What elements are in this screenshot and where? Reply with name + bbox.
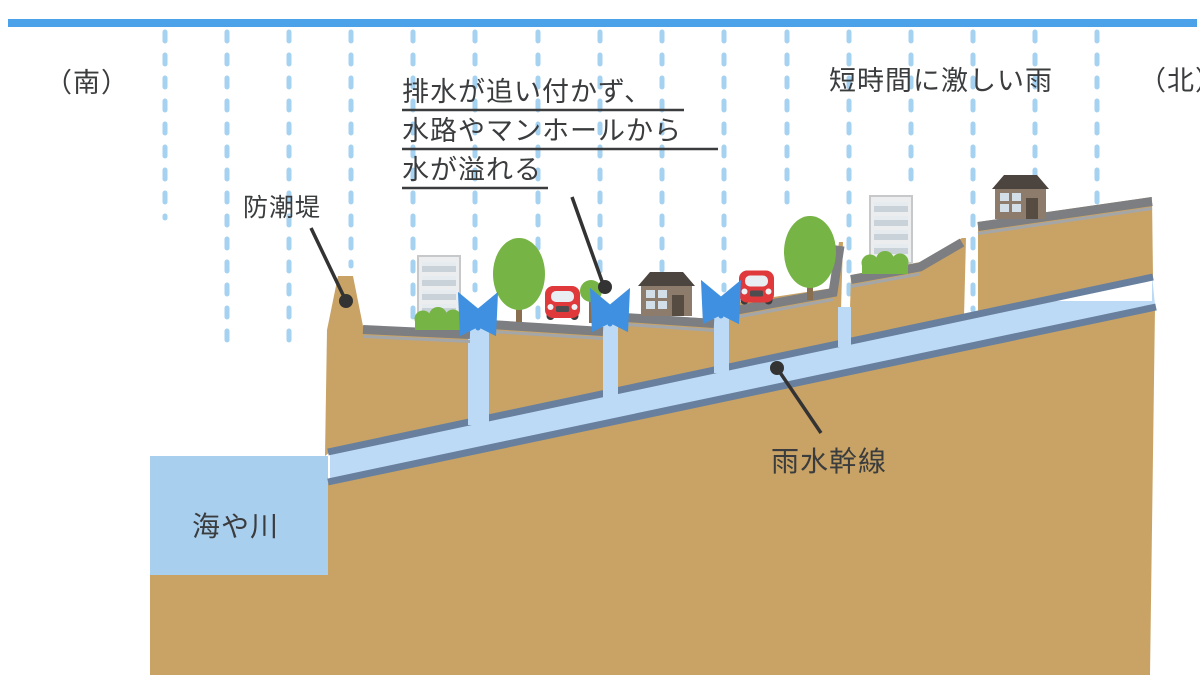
manhole-channel-4: [838, 307, 851, 347]
label-storm-drain: 雨水幹線: [771, 445, 887, 478]
flood-cross-section-diagram: （南） （北） 短時間に激しい雨 防潮堤 排水が追い付かず、 水路やマンホールか…: [0, 0, 1200, 675]
ground: [150, 197, 1155, 675]
manhole-channel-1: [468, 325, 489, 425]
label-heavy-rain: 短時間に激しい雨: [829, 66, 1053, 97]
car-icon: [739, 271, 774, 305]
house-icon: [638, 272, 695, 316]
label-overflow-line2: 水路やマンホールから: [402, 116, 682, 147]
seawall-leader-dot: [339, 294, 353, 308]
label-north: （北）: [1139, 66, 1200, 97]
building-icon: [870, 196, 912, 263]
bush-icon: [862, 251, 909, 274]
seawall-leader-line: [311, 228, 345, 299]
manhole-channel-3: [714, 313, 729, 373]
diagram-canvas: （南） （北） 短時間に激しい雨 防潮堤 排水が追い付かず、 水路やマンホールか…: [0, 0, 1200, 675]
manhole-channel-2: [603, 320, 618, 398]
label-overflow-line1: 排水が追い付かず、: [402, 77, 652, 108]
overflow-leader-dot: [598, 280, 612, 294]
sky-bar: [8, 19, 1197, 27]
label-sea-river: 海や川: [192, 510, 279, 543]
tree-icon: [784, 216, 836, 300]
label-south: （南）: [45, 68, 129, 99]
car-icon: [545, 286, 580, 320]
house-icon: [992, 175, 1049, 219]
label-overflow-line3: 水が溢れる: [402, 155, 542, 186]
label-seawall: 防潮堤: [243, 193, 321, 222]
